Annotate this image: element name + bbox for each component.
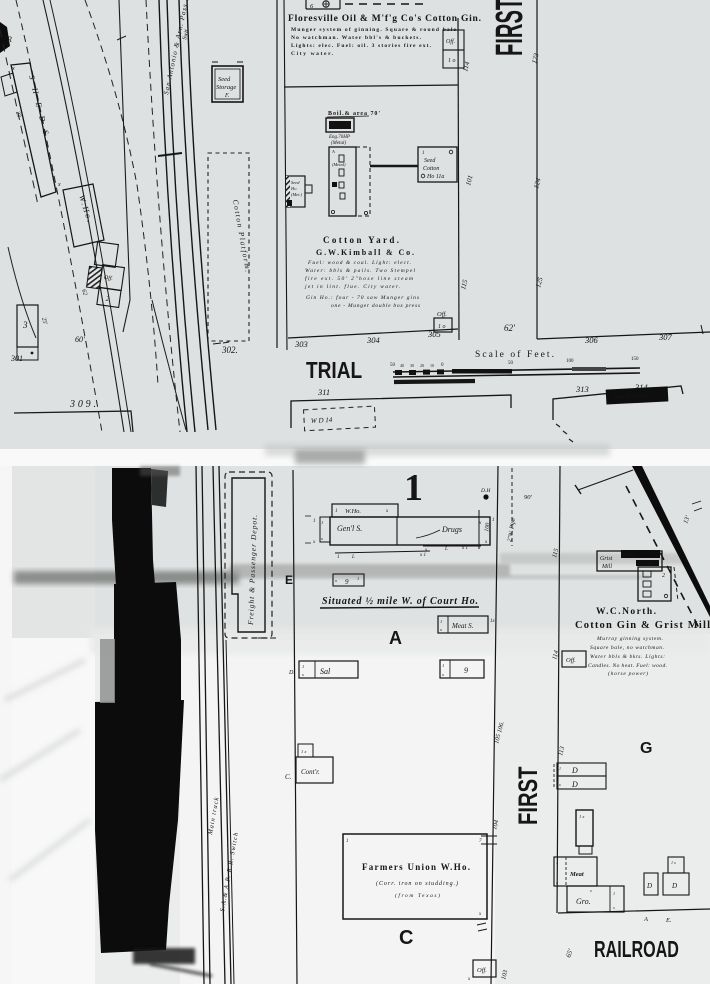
svg-text:A: A	[643, 916, 648, 923]
svg-text:C.: C.	[285, 773, 292, 781]
svg-text:1: 1	[492, 518, 495, 523]
svg-text:D: D	[671, 882, 677, 890]
svg-text:Ho 11a: Ho 11a	[426, 174, 444, 180]
svg-text:301: 301	[10, 354, 23, 363]
svg-text:60': 60'	[75, 335, 85, 344]
svg-text:Floresville Oil & M'f'g Co's C: Floresville Oil & M'f'g Co's Cotton Gin.	[288, 14, 481, 24]
svg-text:FIRST: FIRST	[513, 766, 544, 825]
svg-text:A: A	[331, 149, 335, 154]
svg-text:1: 1	[559, 766, 561, 771]
svg-text:1: 1	[346, 839, 349, 844]
svg-text:50: 50	[390, 363, 396, 368]
svg-text:9: 9	[345, 578, 349, 586]
svg-text:x: x	[301, 672, 304, 677]
svg-text:x: x	[612, 905, 615, 910]
svg-text:x: x	[558, 782, 561, 787]
svg-text:W.Ho.: W.Ho.	[345, 508, 361, 515]
svg-text:(Corr. iron on studding.): (Corr. iron on studding.)	[376, 880, 458, 887]
svg-text:30: 30	[410, 363, 414, 368]
svg-text:Mill: Mill	[601, 564, 612, 570]
svg-text:TRIAL: TRIAL	[306, 358, 362, 383]
svg-text:1: 1	[556, 860, 558, 865]
svg-text:Cotton: Cotton	[423, 166, 439, 172]
svg-text:x 1: x 1	[461, 546, 468, 551]
svg-text:1: 1	[613, 891, 615, 896]
svg-text:R: R	[6, 35, 12, 44]
svg-text:x: x	[439, 627, 442, 632]
svg-text:G: G	[640, 740, 652, 757]
svg-text:Cont'r.: Cont'r.	[301, 768, 320, 776]
svg-text:1: 1	[404, 467, 423, 509]
svg-text:Seed: Seed	[218, 76, 231, 83]
svg-text:1 x: 1 x	[301, 749, 306, 754]
svg-text:RAILROAD: RAILROAD	[594, 937, 679, 962]
svg-text:(horse power): (horse power)	[608, 670, 648, 677]
svg-text:F.: F.	[224, 93, 229, 99]
svg-text:3: 3	[22, 320, 28, 330]
svg-text:1: 1	[357, 576, 359, 581]
svg-text:1: 1	[313, 519, 316, 524]
svg-text:2: 2	[662, 573, 665, 579]
svg-text:Seed: Seed	[291, 180, 300, 185]
svg-text:L: L	[351, 555, 355, 560]
svg-text:1: 1	[440, 619, 442, 624]
svg-text:1x: 1x	[490, 619, 496, 624]
svg-text:G.W.Kimball & Co.: G.W.Kimball & Co.	[316, 248, 414, 257]
svg-text:D: D	[646, 882, 652, 890]
svg-text:Farmers Union W.Ho.: Farmers Union W.Ho.	[362, 862, 470, 872]
svg-text:313: 313	[575, 384, 589, 394]
svg-text:Off.: Off.	[446, 38, 455, 45]
svg-text:304: 304	[366, 335, 381, 345]
svg-text:Off.: Off.	[437, 311, 447, 318]
svg-text:Off.: Off.	[566, 657, 576, 664]
svg-text:20: 20	[420, 363, 424, 368]
svg-text:Situated ½ mile W. of Court Ho: Situated ½ mile W. of Court Ho.	[322, 596, 478, 607]
svg-text:9: 9	[464, 666, 468, 675]
svg-text:Gro.: Gro.	[576, 897, 591, 906]
svg-text:1: 1	[321, 520, 323, 525]
svg-text:1: 1	[557, 654, 560, 659]
svg-text:Eng.70HP: Eng.70HP	[328, 135, 350, 140]
svg-text:Square bale, no watchman.: Square bale, no watchman.	[590, 645, 664, 651]
svg-text:Candles. No heat. Fuel: wood.: Candles. No heat. Fuel: wood.	[588, 663, 667, 669]
svg-text:E.: E.	[665, 917, 672, 924]
svg-text:x: x	[441, 672, 444, 677]
svg-text:40: 40	[400, 363, 404, 368]
svg-text:1: 1	[422, 151, 425, 156]
svg-text:1: 1	[442, 663, 444, 668]
svg-text:Pat.20 B: Pat.20 B	[636, 562, 652, 567]
svg-text:(Metal): (Metal)	[332, 162, 346, 167]
svg-text:L: L	[444, 547, 448, 552]
svg-text:x: x	[555, 880, 558, 885]
svg-text:Meat: Meat	[569, 871, 584, 878]
svg-text:x 1: x 1	[419, 553, 426, 558]
svg-text:100: 100	[566, 359, 574, 364]
svg-text:W D 14: W D 14	[311, 416, 333, 425]
svg-text:50: 50	[508, 361, 514, 366]
svg-text:Drugs: Drugs	[441, 525, 462, 534]
svg-text:A: A	[389, 628, 402, 648]
svg-text:Off.: Off.	[103, 274, 113, 282]
svg-text:1: 1	[335, 509, 338, 514]
svg-text:D: D	[571, 780, 578, 789]
svg-text:jet in lint. flue. City water.: jet in lint. flue. City water.	[304, 283, 400, 290]
svg-text:Water: bbls & pails. Two Stemp: Water: bbls & pails. Two Stempel	[305, 268, 415, 274]
svg-text:307: 307	[658, 332, 673, 342]
svg-text:Lights: elec. Fuel: oil. 3 sto: Lights: elec. Fuel: oil. 3 stories fire …	[291, 43, 432, 49]
svg-text:Meat S.: Meat S.	[451, 622, 474, 630]
svg-text:303: 303	[294, 339, 308, 349]
svg-text:311: 311	[317, 387, 330, 397]
svg-text:Cotton Gin & Grist Mill: Cotton Gin & Grist Mill	[575, 620, 710, 631]
svg-text:1 o: 1 o	[438, 324, 446, 330]
svg-text:Sal: Sal	[320, 667, 331, 676]
svg-text:1: 1	[302, 664, 304, 669]
svg-text:No watchman. Water bbl's & buc: No watchman. Water bbl's & buckets.	[291, 35, 422, 41]
svg-text:10: 10	[430, 363, 434, 368]
svg-text:Republic: Republic	[621, 552, 636, 557]
svg-text:D: D	[571, 766, 578, 775]
svg-text:90': 90'	[524, 494, 533, 501]
svg-text:x: x	[11, 66, 15, 72]
svg-text:Cotton Yard.: Cotton Yard.	[323, 235, 401, 245]
svg-text:(Met.): (Met.)	[291, 192, 303, 197]
svg-text:1 x: 1 x	[671, 860, 676, 865]
svg-text:Storage: Storage	[216, 84, 236, 91]
svg-text:(Metal): (Metal)	[331, 141, 346, 146]
svg-text:x: x	[320, 536, 323, 541]
svg-text:Gen'l S.: Gen'l S.	[337, 524, 362, 533]
svg-text:D.: D.	[288, 670, 295, 676]
svg-text:1 x: 1 x	[579, 814, 584, 819]
svg-text:1: 1	[337, 555, 340, 560]
svg-text:x: x	[589, 888, 592, 893]
svg-text:Murray ginning system.: Murray ginning system.	[596, 636, 663, 642]
svg-text:E: E	[285, 573, 293, 587]
svg-text:Grist: Grist	[600, 556, 613, 562]
svg-text:one - Munger double box press: one - Munger double box press	[331, 303, 420, 309]
svg-text:306: 306	[584, 335, 599, 345]
svg-text:62': 62'	[504, 323, 516, 333]
svg-text:x: x	[334, 578, 337, 583]
svg-text:Seed: Seed	[424, 158, 436, 164]
svg-text:Off.: Off.	[477, 967, 487, 974]
svg-text:Gin Ho.: four - 70 saw Munger: Gin Ho.: four - 70 saw Munger gins	[306, 294, 419, 301]
svg-text:FIRST: FIRST	[488, 0, 530, 56]
svg-text:Water bbls & bkts. Lights:: Water bbls & bkts. Lights:	[590, 654, 665, 660]
svg-text:Fuel: wood & coal. Light: elec: Fuel: wood & coal. Light: elect.	[307, 260, 411, 266]
svg-text:D.H: D.H	[480, 488, 491, 494]
svg-text:C: C	[399, 927, 413, 949]
svg-text:x: x	[57, 182, 61, 188]
svg-text:City water.: City water.	[291, 51, 334, 57]
svg-text:150: 150	[631, 357, 639, 362]
svg-text:1 o: 1 o	[448, 58, 456, 64]
svg-text:Ho: Ho	[290, 186, 297, 191]
svg-text:302.: 302.	[221, 345, 238, 355]
